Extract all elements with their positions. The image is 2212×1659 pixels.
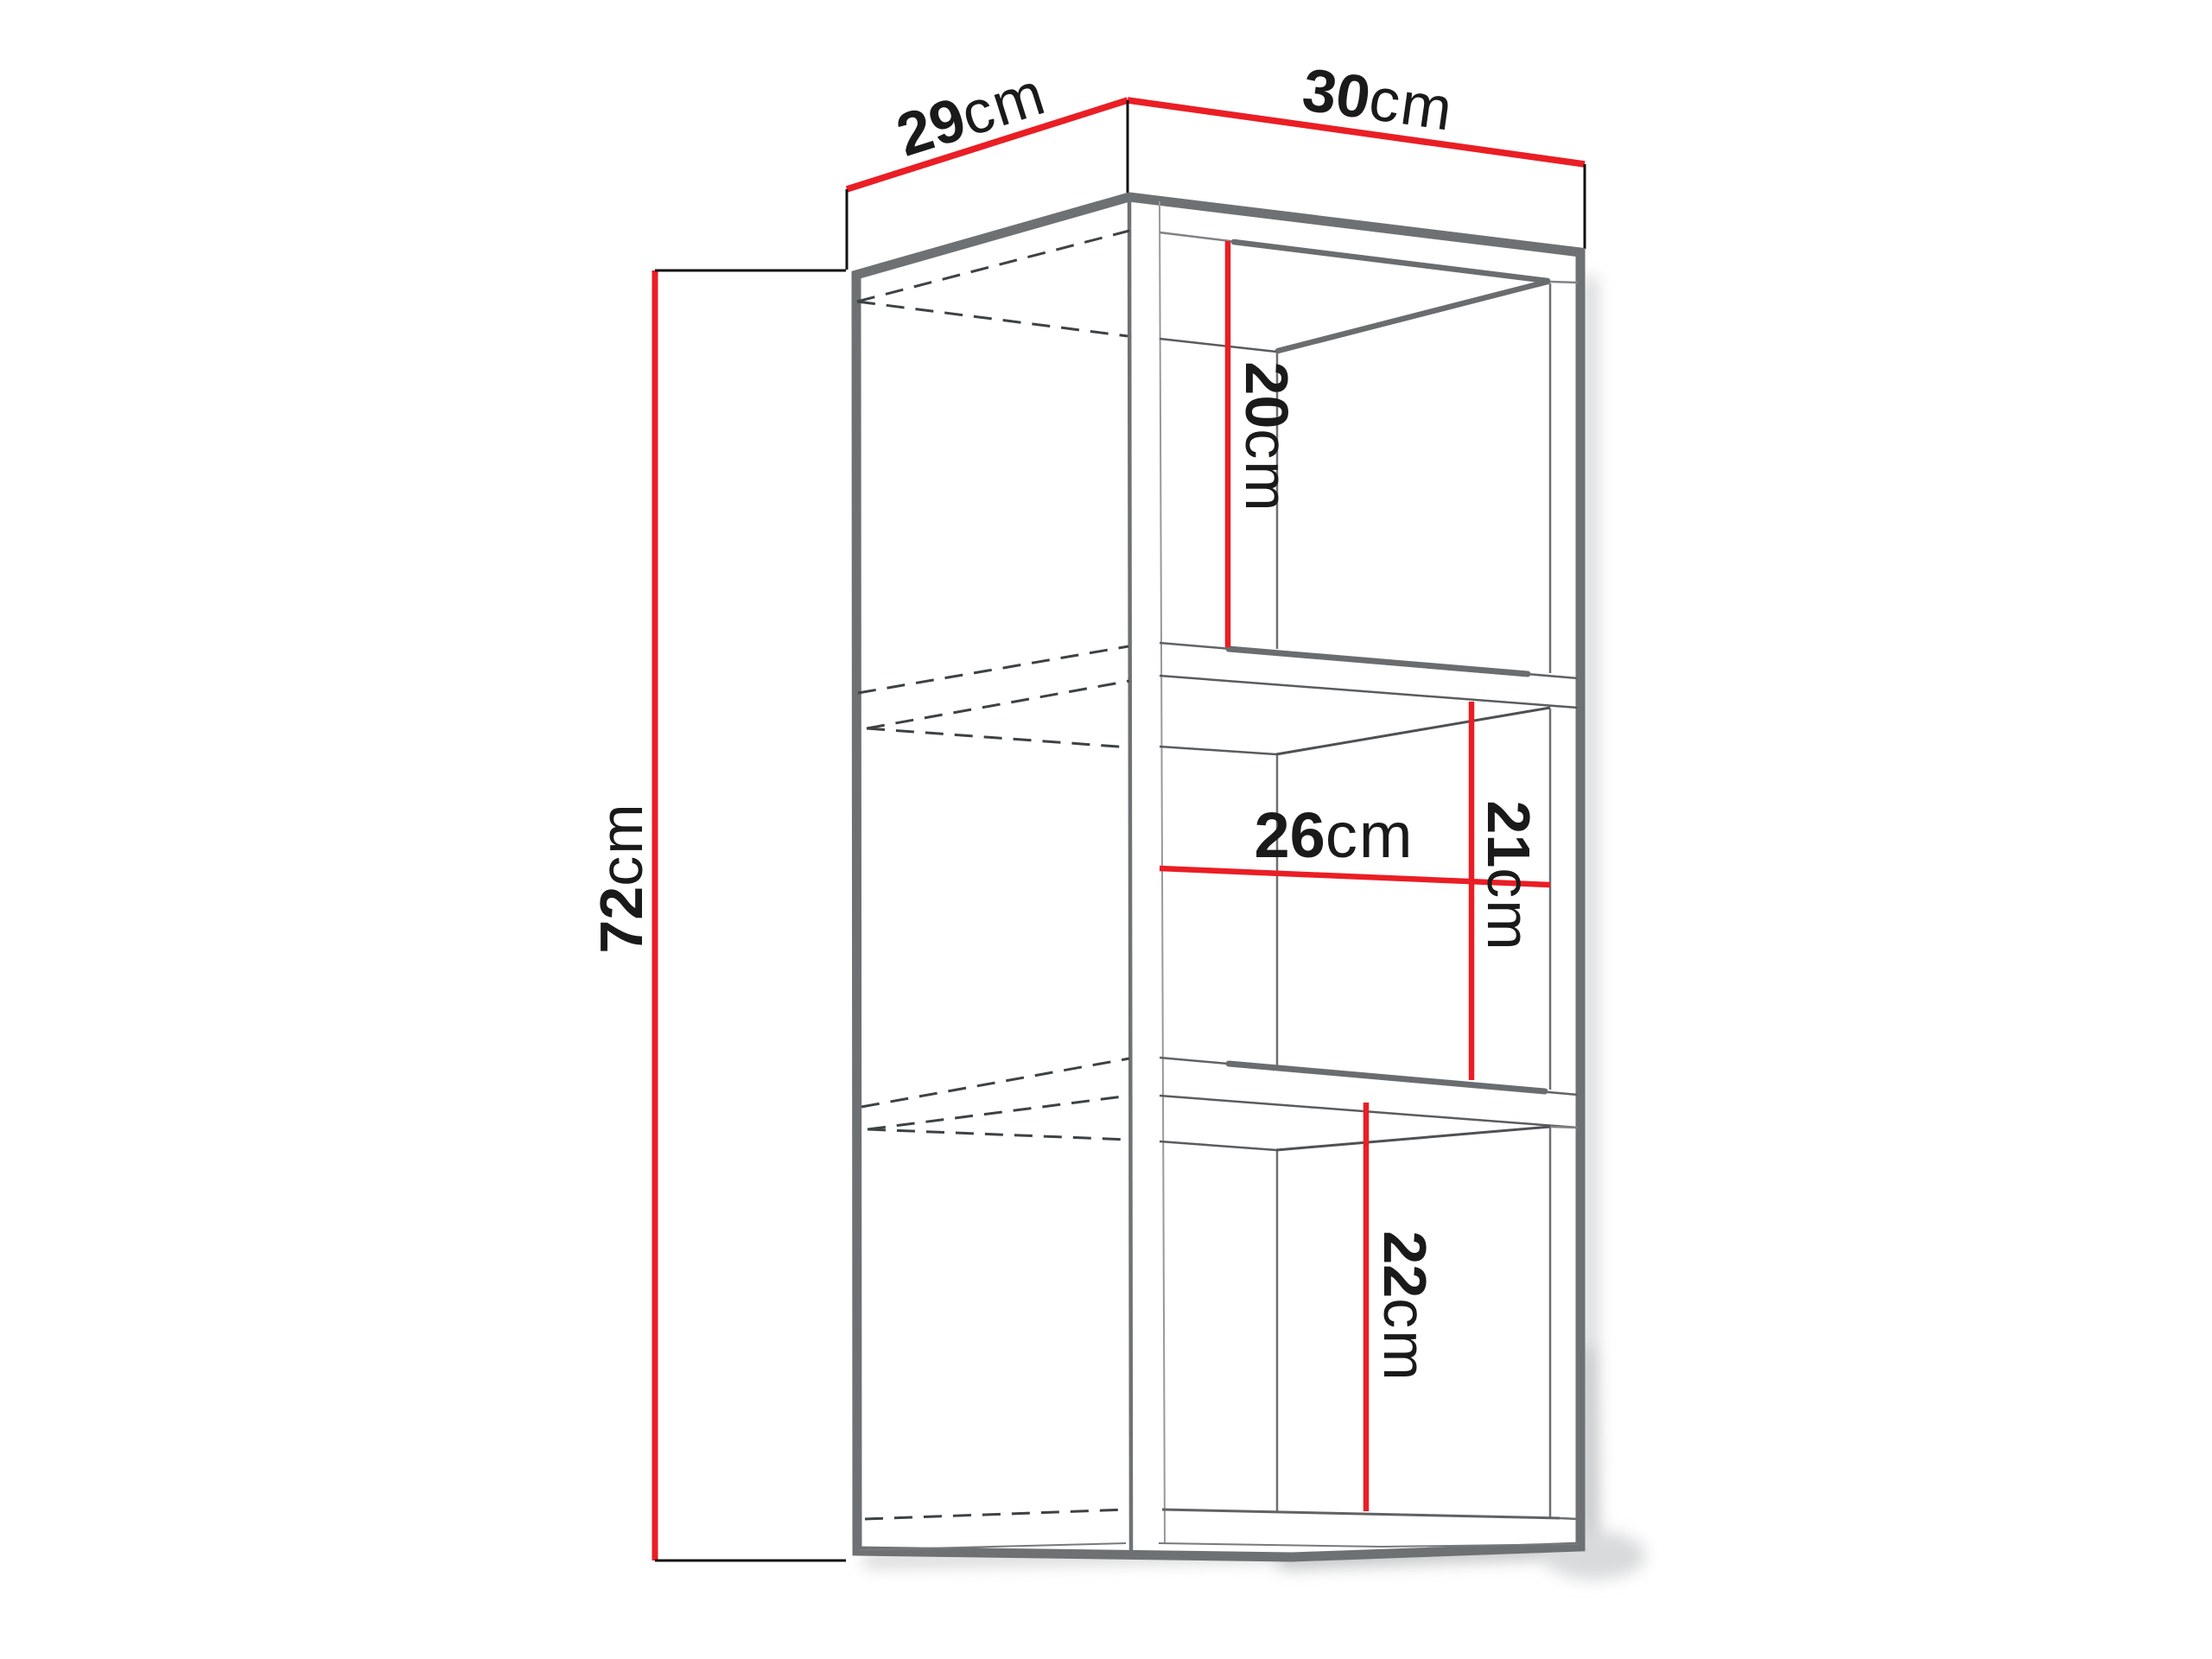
- svg-text:20cm: 20cm: [1233, 361, 1300, 512]
- svg-text:72cm: 72cm: [588, 802, 655, 953]
- svg-text:21cm: 21cm: [1475, 800, 1542, 951]
- svg-text:22cm: 22cm: [1371, 1230, 1439, 1382]
- svg-text:26cm: 26cm: [1255, 799, 1414, 871]
